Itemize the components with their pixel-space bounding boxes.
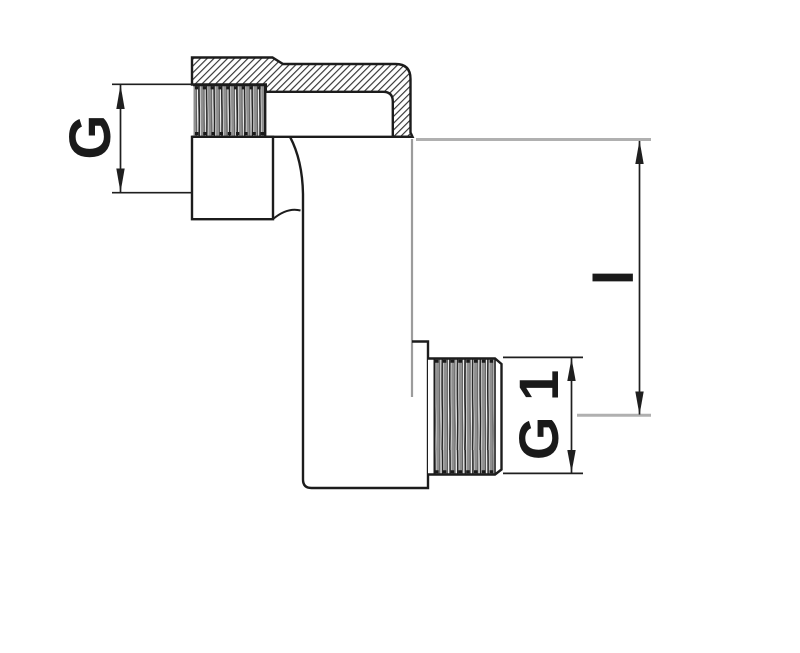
dimension-G1: G 1 — [503, 357, 583, 473]
label-l: l — [582, 270, 645, 286]
female-port-body — [192, 137, 273, 219]
technical-drawing-page: G G 1 l — [0, 0, 800, 653]
male-thread-texture — [434, 359, 495, 475]
fitting-section-drawing: G G 1 l — [0, 0, 800, 653]
female-thread-texture — [194, 85, 265, 137]
stem-body-fill — [290, 137, 428, 488]
label-G1: G 1 — [507, 370, 570, 460]
male-port — [428, 359, 502, 475]
label-G: G — [58, 114, 123, 159]
